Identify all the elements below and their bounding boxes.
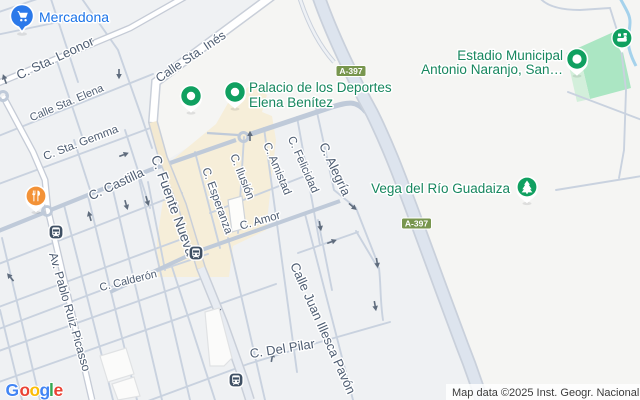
svg-text:Antonio Naranjo, San…: Antonio Naranjo, San… [421, 62, 563, 77]
svg-text:G: G [6, 380, 20, 400]
svg-text:Elena Benítez: Elena Benítez [249, 95, 333, 110]
svg-text:Palacio de los Deportes: Palacio de los Deportes [249, 80, 392, 95]
svg-text:e: e [54, 380, 64, 400]
svg-text:A-397: A-397 [339, 66, 362, 76]
svg-text:Estadio Municipal: Estadio Municipal [457, 48, 563, 63]
svg-text:A-397: A-397 [405, 219, 428, 229]
svg-text:Mercadona: Mercadona [39, 9, 109, 25]
svg-text:Map data ©2025 Inst. Geogr. Na: Map data ©2025 Inst. Geogr. Nacional [452, 387, 639, 399]
svg-text:Vega del Río Guadaiza: Vega del Río Guadaiza [371, 181, 510, 196]
